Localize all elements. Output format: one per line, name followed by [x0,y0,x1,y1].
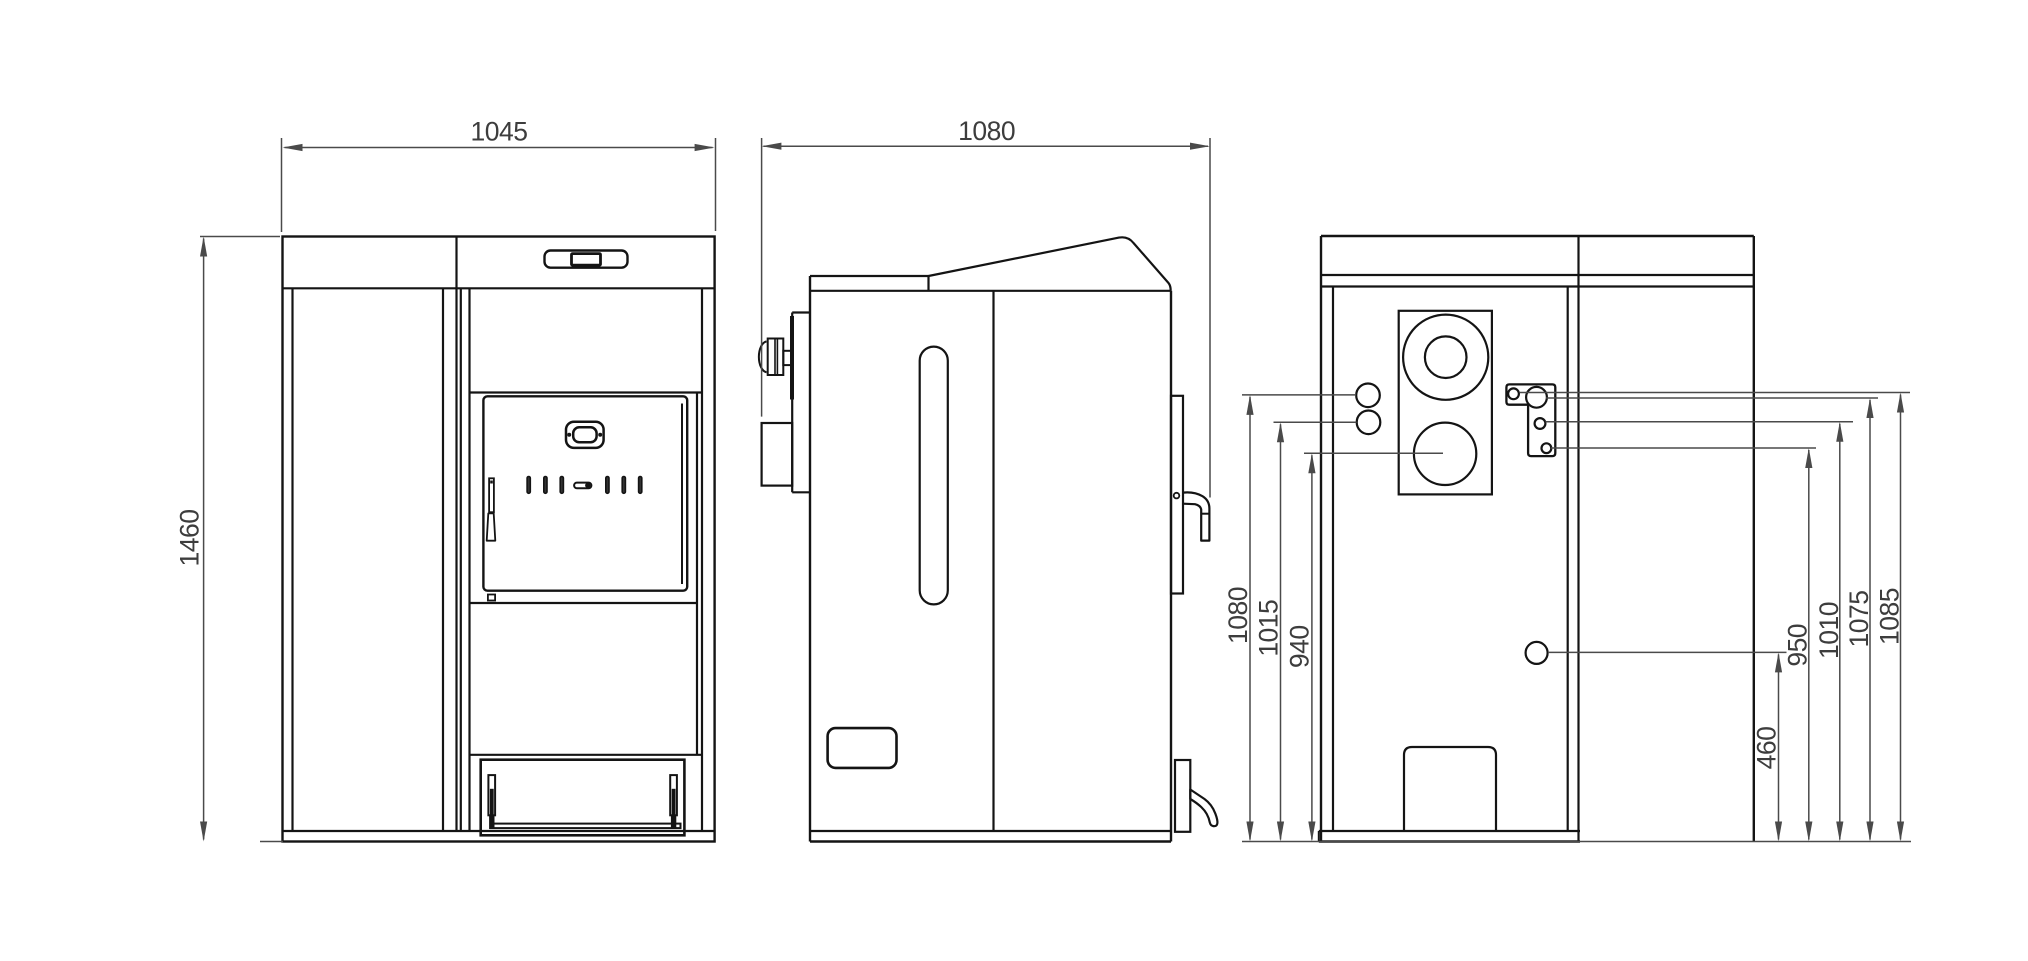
svg-text:950: 950 [1783,624,1813,667]
svg-text:460: 460 [1751,727,1781,770]
svg-text:940: 940 [1284,625,1314,668]
svg-text:1080: 1080 [1223,587,1253,644]
svg-text:1085: 1085 [1874,588,1904,645]
svg-text:1075: 1075 [1844,591,1874,648]
svg-text:1010: 1010 [1814,602,1844,659]
svg-text:1045: 1045 [471,117,528,147]
svg-text:1460: 1460 [174,510,204,567]
svg-text:1015: 1015 [1254,600,1284,657]
svg-text:1080: 1080 [958,116,1015,146]
